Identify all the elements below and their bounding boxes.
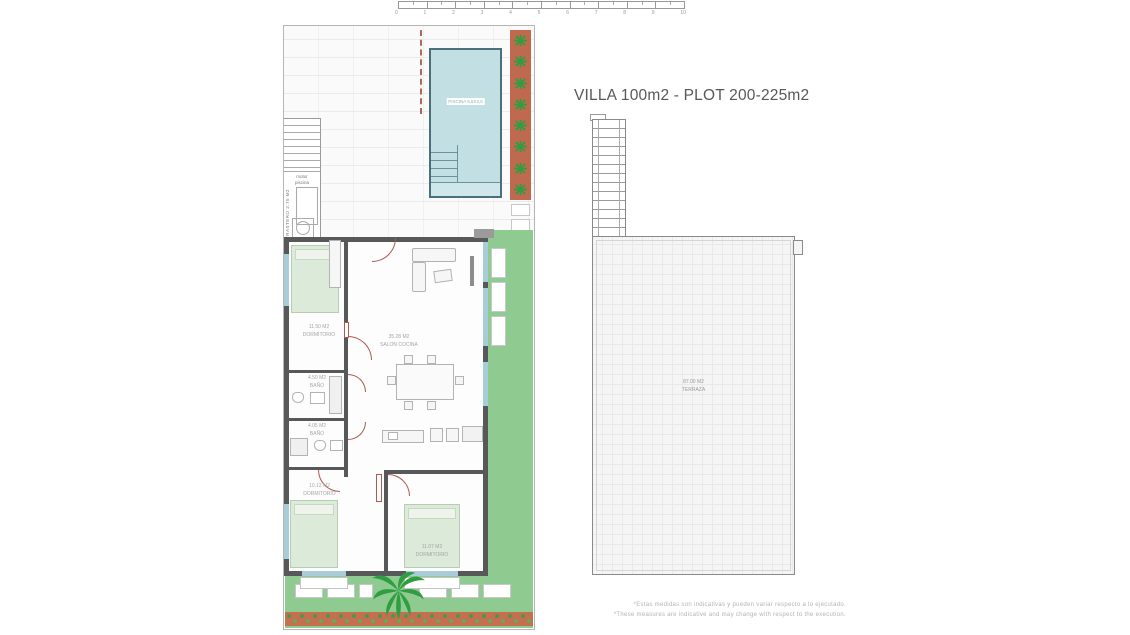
shrub-icon	[513, 140, 528, 153]
palm-tree-icon	[370, 569, 428, 621]
room-area: 4.50 M2	[292, 375, 342, 383]
room-label-living: 35.28 M2 SALON COCINA	[364, 334, 434, 349]
room-name: TERRAZA	[593, 387, 794, 395]
room-label-bath1: 4.50 M2 BAÑO	[292, 375, 342, 390]
scale-tick: 3	[481, 10, 484, 16]
room-area: 11.50 M2	[294, 324, 344, 332]
scale-segment	[571, 2, 600, 8]
window-sill	[300, 577, 348, 589]
scale-tick: 4	[509, 10, 512, 16]
window	[284, 254, 289, 306]
scale-segment	[399, 2, 428, 8]
shrub-icon	[513, 55, 528, 68]
fridge	[446, 428, 459, 442]
door-leaf	[376, 474, 382, 502]
oven	[430, 428, 443, 442]
chair	[404, 401, 413, 410]
door-leaf	[344, 322, 349, 338]
scale-bar	[398, 1, 685, 9]
pool-shallow-shelf	[431, 182, 500, 196]
scale-tick: 10	[680, 10, 686, 16]
site-plan: PISCINA 6,5X2,5 motor piscina TRASTERO 2…	[283, 25, 535, 630]
room-area: 87.00 M2	[593, 379, 794, 387]
setback-dashed-line	[420, 30, 422, 114]
bed	[290, 500, 338, 568]
shrub-icon	[513, 119, 528, 132]
kitchen-counter	[462, 426, 483, 442]
scale-segment	[542, 2, 571, 8]
room-label-terrace: 87.00 M2 TERRAZA	[593, 379, 794, 394]
room-name: BAÑO	[292, 383, 342, 391]
pump-room-label: motor piscina	[284, 174, 320, 186]
chair	[427, 355, 436, 364]
disclaimer: *Estas medidas son indicativas y pueden …	[556, 601, 846, 620]
chair	[387, 376, 396, 385]
disclaimer-line-en: *These measures are indicative and may c…	[556, 611, 846, 621]
scale-tick: 9	[652, 10, 655, 16]
scale-segment	[456, 2, 485, 8]
scale-tick: 5	[538, 10, 541, 16]
scale-tick: 2	[452, 10, 455, 16]
scale-tick: 6	[566, 10, 569, 16]
interior-wall	[384, 470, 488, 474]
disclaimer-line-es: *Estas medidas son indicativas y pueden …	[556, 601, 846, 611]
interior-wall	[284, 418, 348, 421]
scale-segment	[599, 2, 628, 8]
scale-tick: 7	[595, 10, 598, 16]
floorplan-page: 0 1 2 3 4 5 6 7 8 9 10 PISCINA 6,5X2,5	[0, 0, 1130, 635]
room-name: SALON COCINA	[364, 342, 434, 350]
room-name: BAÑO	[292, 431, 342, 439]
washbasin	[330, 440, 343, 451]
room-name: DORMITORIO	[292, 491, 347, 499]
shower	[290, 438, 308, 456]
room-name: DORMITORIO	[294, 332, 344, 340]
shrub-icon	[513, 34, 528, 47]
pool-steps	[431, 145, 458, 183]
pool-pump-room: motor piscina TRASTERO 2.75 M2	[284, 118, 321, 243]
planting-strip	[510, 30, 531, 200]
window	[284, 504, 289, 559]
swimming-pool: PISCINA 6,5X2,5	[429, 48, 502, 198]
pool-label: PISCINA 6,5X2,5	[446, 98, 485, 105]
sofa-chaise	[412, 262, 426, 292]
dining-table	[396, 364, 454, 400]
sofa	[412, 248, 456, 262]
paving-stone	[511, 204, 530, 216]
shrub-icon	[513, 162, 528, 175]
tv-unit	[470, 256, 474, 286]
interior-wall	[284, 370, 348, 373]
washbasin	[310, 392, 325, 404]
terrace-corner-step	[793, 240, 803, 255]
shrub-icon	[513, 98, 528, 111]
room-area: 4.05 M2	[292, 423, 342, 431]
exterior-stairs	[284, 119, 320, 172]
chair	[455, 376, 464, 385]
room-label-bedroom1: 11.50 M2 DORMITORIO	[294, 324, 344, 339]
chair	[404, 355, 413, 364]
shrub-icon	[513, 183, 528, 196]
scale-tick: 0	[395, 10, 398, 16]
side-garden	[488, 230, 533, 576]
scale-segment	[485, 2, 514, 8]
scale-segment	[628, 2, 657, 8]
storage-label: TRASTERO 2.75 M2	[285, 189, 290, 239]
room-area: 10.12 M2	[292, 483, 347, 491]
pump-room-label-line1: motor	[296, 174, 308, 179]
toilet	[292, 392, 304, 403]
room-name: DORMITORIO	[402, 552, 462, 560]
room-area: 35.28 M2	[364, 334, 434, 342]
pump-room-label-line2: piscina	[295, 180, 309, 185]
paving-stone	[491, 248, 506, 278]
scale-bar-numbers: 0 1 2 3 4 5 6 7 8 9 10	[395, 10, 686, 16]
washer-drum-icon	[296, 221, 310, 235]
toilet	[314, 440, 326, 451]
scale-segment	[513, 2, 542, 8]
scale-segment	[656, 2, 684, 8]
scale-tick: 1	[424, 10, 427, 16]
ac-unit	[474, 229, 494, 238]
roof-terrace: 87.00 M2 TERRAZA	[592, 236, 795, 575]
room-label-bedroom3: 11.07 M2 DORMITORIO	[402, 544, 462, 559]
wardrobe	[329, 240, 341, 288]
kitchen-sink	[388, 432, 398, 440]
room-area: 11.07 M2	[402, 544, 462, 552]
paving-stone	[483, 584, 511, 598]
washing-machine-icon	[292, 218, 314, 238]
room-label-bedroom2: 10.12 M2 DORMITORIO	[292, 483, 347, 498]
room-label-bath2: 4.05 M2 BAÑO	[292, 423, 342, 438]
coffee-table	[433, 269, 452, 283]
plan-title: VILLA 100m2 - PLOT 200-225m2	[574, 87, 809, 105]
paving-stone	[491, 316, 506, 346]
scale-tick: 8	[623, 10, 626, 16]
scale-segment	[428, 2, 457, 8]
paving-stone	[491, 282, 506, 312]
chair	[427, 401, 436, 410]
shrub-icon	[513, 77, 528, 90]
